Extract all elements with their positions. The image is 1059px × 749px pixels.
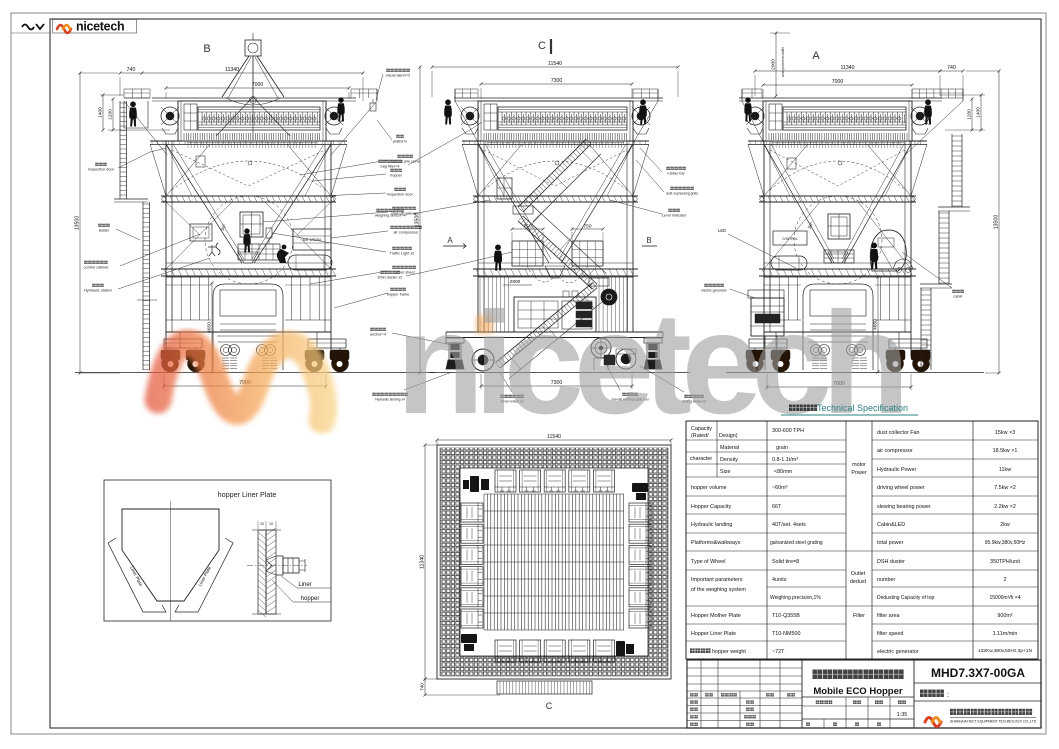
- svg-text:T10-NM500: T10-NM500: [772, 631, 800, 637]
- svg-text:Technical Specification: Technical Specification: [817, 403, 908, 413]
- svg-text:66T: 66T: [772, 504, 782, 510]
- svg-text:Hydraulic landing: Hydraulic landing: [691, 522, 732, 528]
- svg-text:air compressor: air compressor: [393, 231, 419, 235]
- svg-text:Important parameters: Important parameters: [691, 577, 743, 583]
- svg-text:Design): Design): [719, 433, 738, 439]
- svg-text:740: 740: [420, 683, 425, 691]
- svg-text:Level indicator: Level indicator: [662, 214, 687, 218]
- svg-text:Weighing precision,1%: Weighing precision,1%: [770, 595, 821, 601]
- svg-text:B: B: [646, 236, 651, 245]
- svg-text:13500: 13500: [75, 216, 81, 231]
- svg-text:weighing sensor=4: weighing sensor=4: [375, 214, 405, 218]
- svg-text:MHD7.3X7-00GA: MHD7.3X7-00GA: [931, 666, 1025, 680]
- svg-text:DSH duster x2: DSH duster x2: [378, 276, 403, 280]
- svg-text:350TPH/unit: 350TPH/unit: [990, 559, 1020, 565]
- svg-text:7300: 7300: [551, 78, 563, 84]
- svg-text:Hydraulic Power: Hydraulic Power: [877, 467, 916, 473]
- svg-text:grain: grain: [776, 445, 788, 451]
- svg-text:132Kw,380v,50Hz,3p+1N: 132Kw,380v,50Hz,3p+1N: [978, 648, 1032, 654]
- svg-text:11540: 11540: [548, 61, 562, 67]
- svg-text:DSH duster: DSH duster: [877, 559, 905, 565]
- svg-text:~60m³: ~60m³: [772, 485, 788, 491]
- svg-text:nicetech: nicetech: [76, 20, 124, 34]
- svg-text:Size: Size: [720, 469, 731, 475]
- svg-text:Hopper Liner Plate: Hopper Liner Plate: [691, 631, 736, 637]
- svg-text:air compressor: air compressor: [877, 448, 913, 454]
- svg-text:slewing bearing power: slewing bearing power: [877, 504, 931, 510]
- svg-text:Filter: Filter: [853, 613, 865, 619]
- svg-text:Cabin&LED: Cabin&LED: [877, 522, 905, 528]
- svg-text:1200: 1200: [967, 109, 973, 120]
- svg-text:1400: 1400: [98, 107, 104, 118]
- svg-text:40T/set. 4sets: 40T/set. 4sets: [772, 522, 806, 528]
- svg-text:900m²: 900m²: [997, 613, 1012, 619]
- svg-text:4units: 4units: [772, 577, 787, 583]
- svg-text:2: 2: [1004, 577, 1007, 583]
- svg-text:2kw: 2kw: [1000, 522, 1010, 528]
- svg-text:~72T: ~72T: [772, 649, 785, 655]
- svg-text:13500: 13500: [994, 215, 1000, 230]
- svg-text:anchor=4: anchor=4: [370, 333, 386, 337]
- svg-text:Hopper Mother Plate: Hopper Mother Plate: [691, 613, 741, 619]
- svg-text:740: 740: [127, 67, 136, 73]
- svg-text:Liner: Liner: [298, 582, 311, 588]
- svg-text:300-600 TPH: 300-600 TPH: [772, 428, 804, 434]
- svg-text:bag filter=4: bag filter=4: [381, 165, 400, 169]
- svg-text:inspection door: inspection door: [88, 168, 114, 172]
- svg-text:4650: 4650: [207, 322, 213, 333]
- svg-text:galvanized steel grating: galvanized steel grating: [770, 540, 823, 546]
- svg-text:(Rated/: (Rated/: [691, 433, 709, 439]
- svg-text:2000: 2000: [771, 59, 777, 70]
- svg-text:ladder: ladder: [99, 229, 110, 233]
- svg-text::: :: [947, 690, 949, 699]
- svg-text:control cabinet: control cabinet: [84, 266, 110, 270]
- svg-text:motor: motor: [852, 462, 866, 468]
- svg-text:7000: 7000: [832, 79, 844, 85]
- svg-text:Solid tire=8: Solid tire=8: [772, 559, 799, 565]
- svg-text:filter area: filter area: [877, 613, 899, 619]
- svg-text:7.5kw ×2: 7.5kw ×2: [994, 485, 1016, 491]
- svg-text:Material: Material: [720, 445, 739, 451]
- svg-text:13500: 13500: [415, 213, 421, 228]
- svg-text:Density: Density: [720, 457, 738, 463]
- svg-text:95.9kw,380v,50Hz: 95.9kw,380v,50Hz: [985, 540, 1026, 546]
- svg-text:740: 740: [947, 65, 956, 71]
- svg-text:hopper Liner Plate: hopper Liner Plate: [218, 490, 277, 499]
- svg-text:10: 10: [269, 522, 273, 526]
- svg-text:15kw ×3: 15kw ×3: [995, 430, 1015, 436]
- svg-text:750: 750: [583, 224, 591, 230]
- svg-text:1200: 1200: [108, 109, 114, 120]
- svg-text:visual alarm=2: visual alarm=2: [386, 74, 411, 78]
- svg-text:dust supressing grids: dust supressing grids: [666, 192, 698, 196]
- svg-text:wind protection baffle: wind protection baffle: [781, 47, 785, 77]
- svg-text:Capacity: Capacity: [691, 426, 712, 432]
- svg-text:Dedusting Capacity of top: Dedusting Capacity of top: [877, 595, 934, 601]
- svg-text:0.8-1.1t/m³: 0.8-1.1t/m³: [772, 457, 798, 463]
- svg-text:11340: 11340: [420, 555, 426, 569]
- svg-text:15000m³/h ×4: 15000m³/h ×4: [990, 595, 1021, 601]
- svg-text:1400: 1400: [976, 107, 982, 118]
- svg-text:material pile curve: material pile curve: [390, 160, 421, 164]
- svg-text:C: C: [538, 40, 546, 52]
- svg-text:cabin: cabin: [953, 295, 962, 299]
- svg-text:LED: LED: [718, 228, 726, 233]
- svg-text:Traffic Light x2: Traffic Light x2: [390, 252, 415, 256]
- svg-text:2.2kw ×2: 2.2kw ×2: [994, 504, 1016, 510]
- svg-text:7000: 7000: [252, 82, 264, 88]
- svg-text:Platforms&walkways: Platforms&walkways: [691, 540, 741, 546]
- svg-text:character: character: [690, 456, 713, 462]
- svg-text:SHANGHAI NICT EQUIPMENT TECHNO: SHANGHAI NICT EQUIPMENT TECHNOLOGY CO.,L…: [950, 720, 1037, 724]
- svg-text:B: B: [203, 43, 210, 55]
- svg-text:11540: 11540: [547, 434, 561, 440]
- svg-text:11340: 11340: [840, 65, 854, 71]
- svg-text:hopper: hopper: [390, 174, 403, 178]
- svg-text:dedust: dedust: [850, 579, 867, 585]
- svg-text:18.5kw ×1: 18.5kw ×1: [993, 448, 1018, 454]
- svg-text:hopper weight: hopper weight: [712, 649, 746, 655]
- svg-text:Hydraulic station: Hydraulic station: [84, 289, 112, 293]
- svg-text:Type of Wheel: Type of Wheel: [691, 559, 725, 565]
- svg-text:platform: platform: [393, 140, 407, 144]
- svg-text:hopper: hopper: [301, 596, 320, 602]
- svg-text:dust collector Fan: dust collector Fan: [877, 430, 920, 436]
- svg-text:1:35: 1:35: [897, 712, 908, 718]
- svg-text:T10-Q355B: T10-Q355B: [772, 613, 800, 619]
- svg-text:number: number: [877, 577, 895, 583]
- svg-text:Hopper Capacity: Hopper Capacity: [691, 504, 731, 510]
- svg-text:inspection door: inspection door: [387, 193, 413, 197]
- svg-text:A: A: [447, 236, 453, 245]
- svg-text:rubber bar: rubber bar: [667, 172, 685, 176]
- svg-text:11kw: 11kw: [999, 467, 1011, 473]
- svg-text:Mobile ECO Hopper: Mobile ECO Hopper: [813, 686, 903, 697]
- svg-text:electric generator: electric generator: [877, 649, 919, 655]
- svg-text:10: 10: [260, 522, 264, 526]
- svg-text:Power: Power: [851, 470, 866, 476]
- svg-text:hopper volume: hopper volume: [691, 485, 727, 491]
- svg-text:total power: total power: [877, 540, 904, 546]
- svg-text:of the weighing system: of the weighing system: [691, 587, 746, 593]
- svg-text:driving wheel power: driving wheel power: [877, 485, 925, 491]
- svg-text:filter speed: filter speed: [877, 631, 903, 637]
- svg-text:Outlet: Outlet: [851, 571, 866, 577]
- svg-text:C: C: [546, 701, 553, 711]
- svg-text:11340: 11340: [225, 67, 239, 73]
- svg-text:<80mm: <80mm: [774, 469, 793, 475]
- svg-text:750: 750: [523, 224, 531, 230]
- svg-text:A: A: [812, 50, 820, 62]
- svg-text:1.11m/min: 1.11m/min: [993, 631, 1018, 637]
- svg-text:nicetech: nicetech: [396, 282, 910, 444]
